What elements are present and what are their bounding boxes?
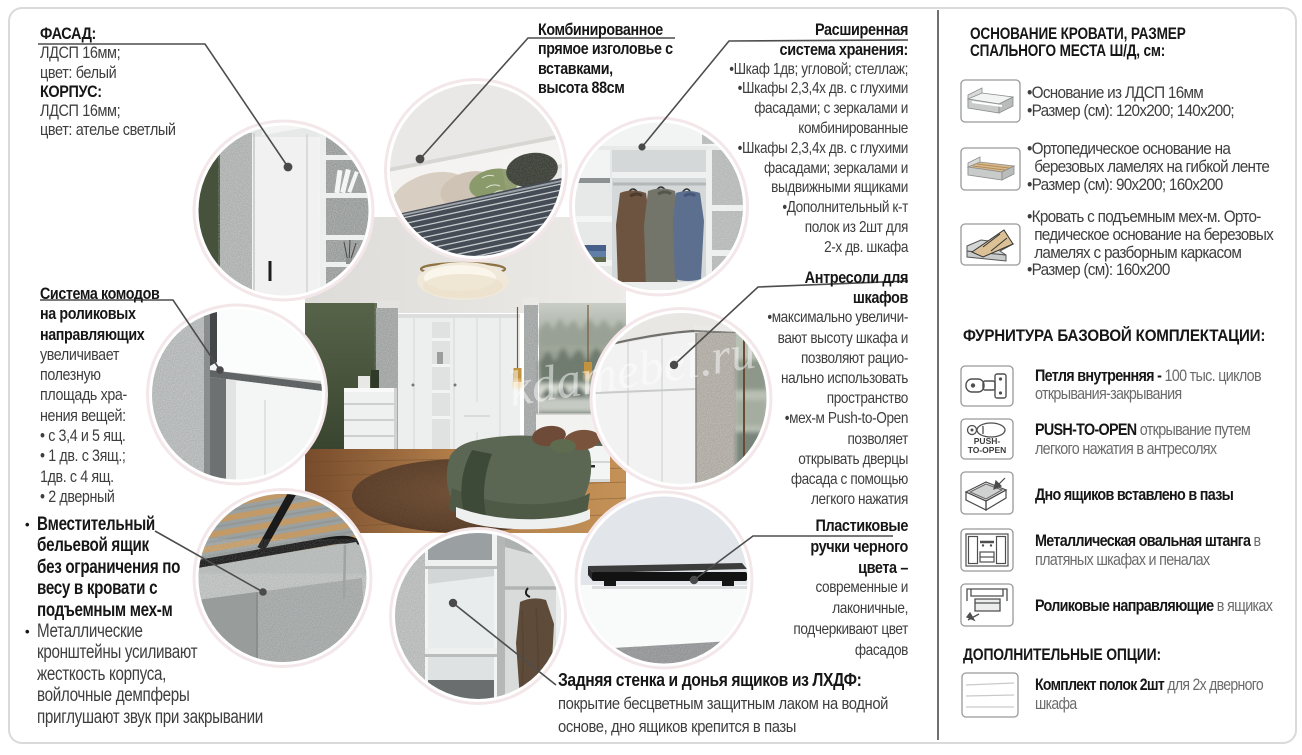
svg-text:TO-OPEN: TO-OPEN <box>968 445 1007 455</box>
